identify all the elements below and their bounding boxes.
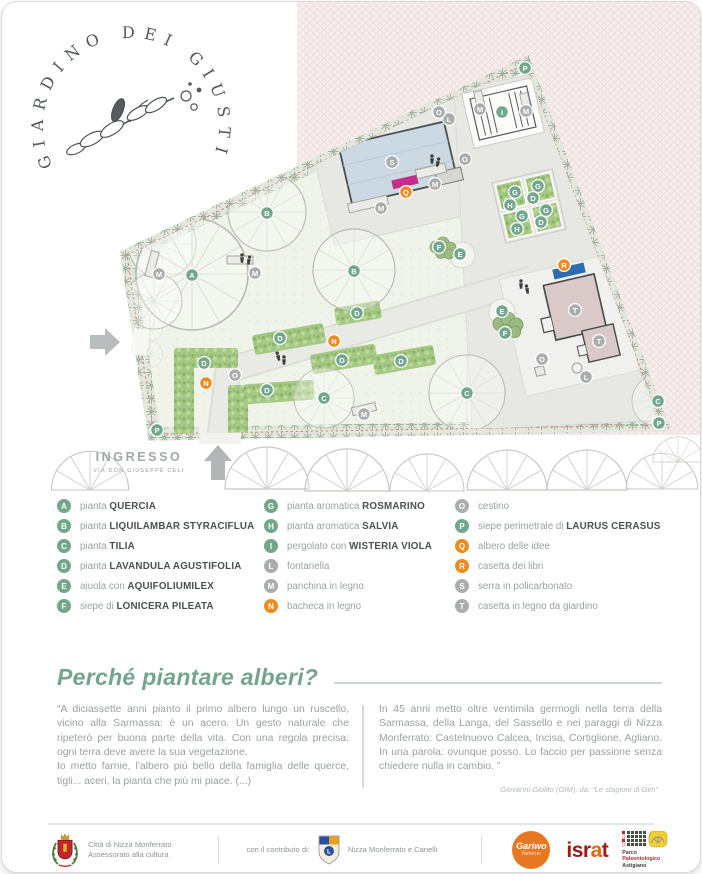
quote-divider — [362, 705, 364, 788]
logo-arc-text: GIARDINO DEI GIUSTI — [28, 24, 234, 172]
map-marker-G: G — [509, 186, 522, 199]
map-marker-C: C — [461, 387, 474, 400]
svg-text:M: M — [378, 204, 384, 213]
city-line-2: Assessorato alla cultura — [88, 850, 172, 860]
svg-text:S: S — [389, 158, 394, 167]
legend-badge-P: P — [455, 519, 469, 533]
map-marker-D: D — [535, 216, 548, 229]
svg-text:H: H — [514, 225, 519, 234]
map-marker-H: H — [511, 223, 524, 236]
map-marker-C: C — [652, 395, 665, 408]
legend-badge-E: E — [57, 579, 71, 593]
legend-column-3: Ocestino Psiepe perimetrale di LAURUS CE… — [455, 499, 674, 619]
map-marker-I: I — [496, 106, 509, 119]
legend-badge-F: F — [57, 599, 71, 613]
city-text: Città di Nizza Monferrato Assessorato al… — [88, 840, 172, 861]
legend-label-D: pianta LAVANDULA AGUSTIFOLIA — [80, 561, 242, 572]
map-marker-T: T — [569, 304, 582, 317]
map-marker-Q: Q — [400, 186, 413, 199]
map-marker-F: F — [433, 241, 446, 254]
svg-text:G: G — [519, 212, 525, 221]
footer: Città di Nizza Monferrato Assessorato al… — [50, 829, 670, 871]
svg-text:N: N — [203, 379, 208, 388]
legend-badge-R: R — [455, 559, 469, 573]
svg-text:D: D — [530, 194, 536, 203]
legend-badge-C: C — [57, 539, 71, 553]
contribution-text: con il contributo di: — [247, 845, 310, 855]
legend-item-C: Cpianta TILIA — [57, 539, 264, 553]
giardino-logo: GIARDINO DEI GIUSTI — [24, 24, 242, 202]
map-marker-D: D — [274, 332, 287, 345]
legend-item-O: Ocestino — [455, 499, 674, 513]
map-marker-G: G — [540, 204, 553, 217]
map-marker-D: D — [261, 384, 274, 397]
svg-text:H: H — [507, 201, 512, 210]
svg-text:T: T — [573, 306, 578, 315]
svg-text:D: D — [398, 357, 404, 366]
footer-divider-2 — [481, 836, 482, 864]
legend-item-T: Tcasetta in legno da giardino — [455, 599, 674, 613]
legend-label-G: pianta aromatica ROSMARINO — [287, 501, 425, 512]
quote-paragraph-3: In 45 anni metto oltre ventimila germogl… — [379, 703, 662, 775]
olive-branch-icon — [65, 82, 201, 157]
map-marker-D: D — [395, 355, 408, 368]
legend-badge-H: H — [264, 519, 278, 533]
map-marker-M: M — [249, 267, 262, 280]
map-marker-D: D — [198, 357, 211, 370]
legend-badge-Q: Q — [455, 539, 469, 553]
legend-badge-N: N — [264, 599, 278, 613]
legend-label-E: aiuola con AQUIFOLIUMILEX — [80, 581, 214, 592]
legend-item-Q: Qalbero delle idee — [455, 539, 674, 553]
city-line-1: Città di Nizza Monferrato — [88, 840, 172, 850]
svg-text:L: L — [584, 373, 589, 382]
map-marker-A: A — [186, 269, 199, 282]
legend-label-R: casetta dei libri — [478, 561, 543, 572]
map-marker-M: M — [474, 103, 487, 116]
legend-badge-S: S — [455, 579, 469, 593]
map-marker-B: B — [348, 265, 361, 278]
garden-map-section: INGRESSO VIA DON GIUSEPPE CELI PPPABBCCC… — [2, 2, 701, 492]
map-marker-R: R — [558, 259, 571, 272]
legend-item-I: Ipergolato con WISTERIA VIOLA — [264, 539, 455, 553]
svg-text:R: R — [561, 261, 567, 270]
svg-text:M: M — [432, 180, 438, 189]
legend-badge-O: O — [455, 499, 469, 513]
svg-text:M: M — [523, 107, 529, 116]
quote-right-column: In 45 anni metto oltre ventimila germogl… — [379, 703, 662, 794]
parco-text: Parco Paleontologico Astigiano — [622, 850, 660, 870]
map-marker-P: P — [519, 62, 532, 75]
legend-item-G: Gpianta aromatica ROSMARINO — [264, 499, 455, 513]
map-marker-C: C — [318, 392, 331, 405]
legend-badge-I: I — [264, 539, 278, 553]
svg-text:D: D — [354, 309, 360, 318]
svg-text:O: O — [232, 371, 238, 380]
svg-text:D: D — [538, 218, 544, 227]
legend-item-D: Dpianta LAVANDULA AGUSTIFOLIA — [57, 559, 264, 573]
quote-attribution: Giovanni Giolito (GIM), da: “Le stagioni… — [379, 785, 662, 794]
legend-item-E: Eaiuola con AQUIFOLIUMILEX — [57, 579, 264, 593]
legend-label-N: bacheca in legno — [287, 601, 361, 612]
map-marker-H: H — [504, 199, 517, 212]
quote-left-column: “A diciassette anni pianto il primo albe… — [57, 703, 349, 794]
svg-text:M: M — [252, 269, 258, 278]
legend-label-L: fontanella — [287, 561, 330, 572]
legend-badge-L: L — [264, 559, 278, 573]
svg-text:I: I — [501, 108, 503, 117]
legend-column-1: Apianta QUERCIABpianta LIQUILAMBAR STYRA… — [57, 499, 264, 619]
map-marker-M: M — [429, 178, 442, 191]
svg-text:E: E — [457, 250, 462, 259]
svg-text:L: L — [447, 115, 452, 124]
quote-section: Perché piantare alberi? “A diciassette a… — [57, 664, 662, 794]
legend-label-H: pianta aromatica SALVIA — [287, 521, 399, 532]
legend-label-I: pergolato con WISTERIA VIOLA — [287, 541, 432, 552]
svg-text:B: B — [264, 209, 270, 218]
parco-logo-icon — [622, 831, 668, 848]
legend-label-T: casetta in legno da giardino — [478, 601, 598, 612]
map-marker-B: B — [261, 207, 274, 220]
legend-item-B: Bpianta LIQUILAMBAR STYRACIFLUA — [57, 519, 264, 533]
lions-club-logo: L — [317, 835, 341, 865]
svg-text:L: L — [327, 848, 331, 855]
svg-text:G: G — [535, 182, 541, 191]
svg-text:D: D — [339, 356, 345, 365]
svg-text:G: G — [512, 188, 518, 197]
svg-text:A: A — [189, 271, 195, 280]
map-marker-G: G — [516, 210, 529, 223]
svg-text:F: F — [437, 243, 442, 252]
map-marker-P: P — [653, 417, 666, 430]
side-entrance-arrow — [90, 328, 120, 356]
lions-text: Nizza Monferrato e Canelli — [348, 845, 437, 855]
map-marker-F: F — [499, 327, 512, 340]
legend-badge-D: D — [57, 559, 71, 573]
legend-item-P: Psiepe perimetrale di LAURUS CERASUS — [455, 519, 674, 533]
legend-item-A: Apianta QUERCIA — [57, 499, 264, 513]
legend-badge-B: B — [57, 519, 71, 533]
svg-text:P: P — [656, 419, 661, 428]
nizza-coat-of-arms — [50, 831, 80, 869]
svg-text:D: D — [277, 334, 283, 343]
legend-badge-M: M — [264, 579, 278, 593]
title-rule — [334, 682, 662, 684]
map-marker-L: L — [580, 371, 593, 384]
svg-text:D: D — [264, 386, 270, 395]
footer-rule — [48, 823, 654, 825]
israt-logo: israt — [566, 840, 608, 861]
map-marker-G: G — [532, 180, 545, 193]
poster-card: INGRESSO VIA DON GIUSEPPE CELI PPPABBCCC… — [1, 1, 701, 873]
legend-item-L: Lfontanella — [264, 559, 455, 573]
quote-title: Perché piantare alberi? — [57, 664, 318, 691]
svg-text:M: M — [361, 410, 367, 419]
map-marker-D: D — [351, 307, 364, 320]
svg-text:T: T — [597, 337, 602, 346]
svg-text:E: E — [499, 307, 504, 316]
map-marker-E: E — [496, 305, 509, 318]
map-marker-P: P — [151, 424, 164, 437]
legend-label-B: pianta LIQUILAMBAR STYRACIFLUA — [80, 521, 254, 532]
svg-text:M: M — [156, 270, 162, 279]
legend-badge-G: G — [264, 499, 278, 513]
legend-item-R: Rcasetta dei libri — [455, 559, 674, 573]
legend-label-O: cestino — [478, 501, 509, 512]
legend-badge-A: A — [57, 499, 71, 513]
legend-item-N: Nbacheca in legno — [264, 599, 455, 613]
svg-text:M: M — [477, 105, 483, 114]
gariwo-logo: Gariwo Network — [512, 831, 550, 869]
svg-text:O: O — [539, 355, 545, 364]
legend-label-P: siepe perimetrale di LAURUS CERASUS — [478, 521, 660, 532]
map-marker-O: O — [536, 353, 549, 366]
legend-label-F: siepe di LONICERA PILEATA — [80, 601, 214, 612]
svg-text:B: B — [351, 267, 357, 276]
legend-item-S: Sserra in policarbonato — [455, 579, 674, 593]
map-marker-T: T — [593, 335, 606, 348]
legend-label-M: panchina in legno — [287, 581, 364, 592]
legend-label-Q: albero delle idee — [478, 541, 550, 552]
map-legend: Apianta QUERCIABpianta LIQUILAMBAR STYRA… — [57, 499, 674, 619]
svg-text:N: N — [331, 337, 336, 346]
svg-text:D: D — [201, 359, 207, 368]
map-marker-O: O — [433, 106, 446, 119]
legend-badge-T: T — [455, 599, 469, 613]
map-marker-S: S — [386, 156, 399, 169]
map-marker-D: D — [336, 354, 349, 367]
legend-item-M: Mpanchina in legno — [264, 579, 455, 593]
map-marker-E: E — [454, 248, 467, 261]
legend-item-F: Fsiepe di LONICERA PILEATA — [57, 599, 264, 613]
footer-divider-1 — [218, 836, 219, 864]
map-marker-M: M — [520, 105, 533, 118]
map-marker-O: O — [459, 153, 472, 166]
svg-text:C: C — [321, 394, 327, 403]
legend-label-S: serra in policarbonato — [478, 581, 572, 592]
map-marker-N: N — [328, 335, 341, 348]
svg-text:O: O — [462, 155, 468, 164]
legend-label-A: pianta QUERCIA — [80, 501, 156, 512]
legend-column-2: Gpianta aromatica ROSMARINOHpianta aroma… — [264, 499, 455, 619]
legend-label-C: pianta TILIA — [80, 541, 135, 552]
quote-paragraph-1: “A diciassette anni pianto il primo albe… — [57, 703, 349, 760]
quote-paragraph-2: Io metto farnie, l'albero più bello dell… — [57, 760, 349, 789]
svg-text:P: P — [522, 64, 527, 73]
svg-text:P: P — [154, 426, 159, 435]
svg-text:O: O — [436, 108, 442, 117]
map-marker-O: O — [229, 369, 242, 382]
map-marker-M: M — [153, 268, 166, 281]
map-marker-M: M — [358, 408, 371, 421]
parco-paleontologico-logo: Parco Paleontologico Astigiano — [622, 831, 668, 870]
svg-text:C: C — [464, 389, 470, 398]
legend-item-H: Hpianta aromatica SALVIA — [264, 519, 455, 533]
map-marker-N: N — [200, 377, 213, 390]
map-marker-D: D — [527, 192, 540, 205]
svg-text:F: F — [503, 329, 508, 338]
svg-text:Q: Q — [403, 188, 409, 197]
entrance-label: INGRESSO — [96, 450, 183, 464]
svg-text:G: G — [543, 206, 549, 215]
svg-text:C: C — [655, 397, 661, 406]
map-marker-M: M — [375, 202, 388, 215]
entrance-sublabel: VIA DON GIUSEPPE CELI — [93, 468, 184, 474]
